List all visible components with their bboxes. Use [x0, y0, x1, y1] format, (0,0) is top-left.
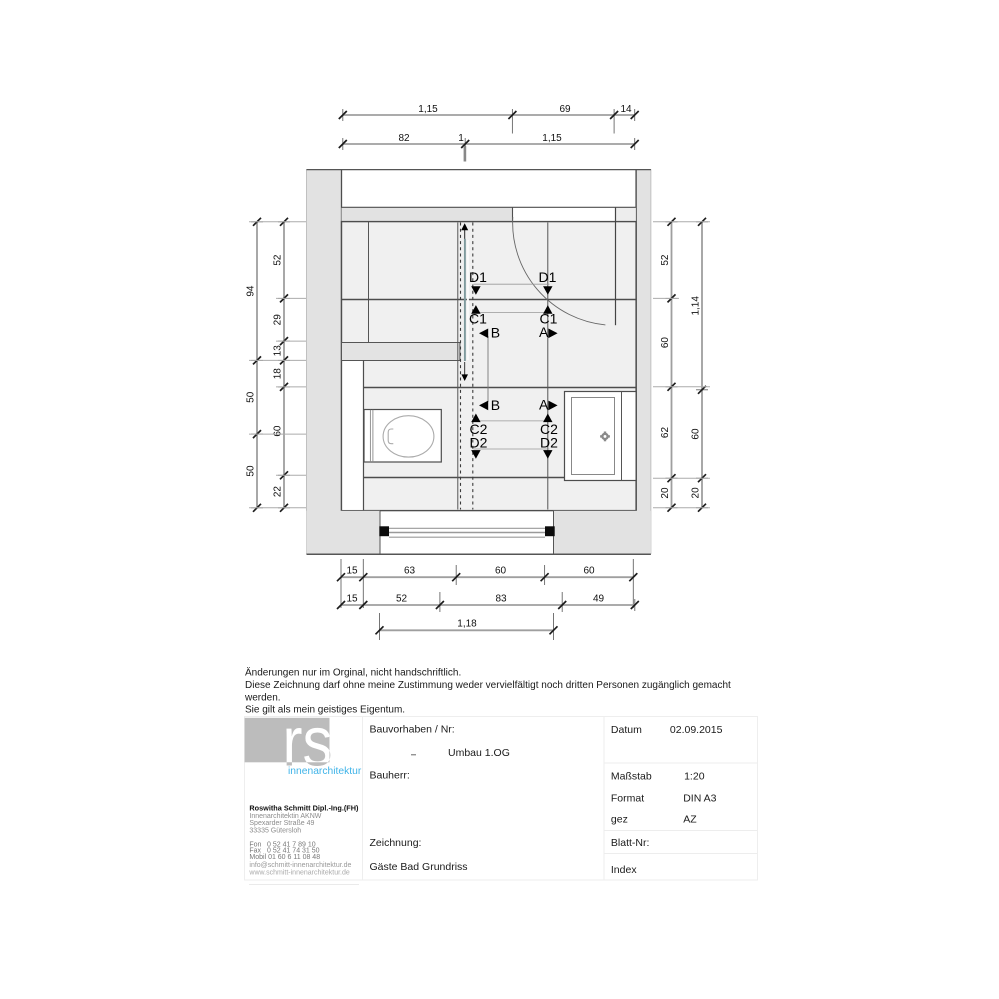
svg-text:1: 1: [458, 133, 464, 144]
svg-text:20: 20: [660, 487, 671, 499]
svg-text:D2: D2: [470, 434, 488, 450]
svg-text:1,14: 1,14: [691, 296, 702, 316]
svg-text:AZ: AZ: [683, 814, 697, 826]
svg-text:15: 15: [346, 566, 358, 577]
svg-text:60: 60: [660, 337, 671, 349]
svg-text:Bauherr:: Bauherr:: [370, 770, 410, 782]
svg-text:69: 69: [559, 104, 571, 115]
svg-text:Mobil 01 60 6 11 08 48: Mobil 01 60 6 11 08 48: [249, 854, 320, 861]
svg-text:Datum: Datum: [611, 724, 642, 736]
svg-text:60: 60: [495, 566, 507, 577]
svg-text:A: A: [539, 397, 549, 413]
svg-text:Bauvorhaben / Nr:: Bauvorhaben / Nr:: [370, 724, 455, 736]
svg-text:14: 14: [620, 104, 632, 115]
svg-text:18: 18: [273, 368, 284, 380]
svg-text:Index: Index: [611, 864, 637, 876]
svg-text:82: 82: [398, 133, 410, 144]
svg-text:Spexarder Straße 49: Spexarder Straße 49: [249, 820, 314, 827]
svg-text:gez: gez: [611, 814, 628, 826]
svg-text:Innenarchitektin AKNW: Innenarchitektin AKNW: [249, 813, 321, 820]
svg-text:Roswitha Schmitt Dipl.-Ing.(FH: Roswitha Schmitt Dipl.-Ing.(FH): [249, 803, 359, 812]
svg-text:22: 22: [273, 486, 284, 498]
svg-text:20: 20: [691, 487, 702, 499]
svg-text:1,18: 1,18: [457, 619, 477, 630]
svg-text:werden.: werden.: [244, 692, 281, 703]
svg-text:www.schmitt-innenarchitektur.d: www.schmitt-innenarchitektur.de: [248, 870, 349, 877]
svg-text:A: A: [539, 324, 549, 340]
svg-text:B: B: [491, 324, 500, 340]
svg-text:52: 52: [273, 254, 284, 266]
svg-text:50: 50: [246, 391, 257, 403]
svg-text:02.09.2015: 02.09.2015: [670, 724, 723, 736]
svg-text:1:20: 1:20: [684, 771, 705, 783]
svg-text:83: 83: [495, 593, 507, 604]
svg-text:29: 29: [273, 314, 284, 326]
svg-text:info@schmitt-innenarchitektur.: info@schmitt-innenarchitektur.de: [249, 862, 351, 869]
svg-text:62: 62: [660, 427, 671, 439]
svg-text:60: 60: [583, 566, 595, 577]
svg-text:Diese Zeichnung darf ohne mein: Diese Zeichnung darf ohne meine Zustimmu…: [245, 680, 731, 691]
svg-text:innenarchitektur: innenarchitektur: [288, 766, 362, 777]
svg-text:60: 60: [273, 425, 284, 437]
svg-text:1,15: 1,15: [418, 104, 438, 115]
svg-text:Umbau 1.OG: Umbau 1.OG: [448, 747, 510, 759]
svg-text:52: 52: [660, 254, 671, 266]
svg-text:Änderungen nur im Orginal, nic: Änderungen nur im Orginal, nicht handsch…: [245, 666, 461, 678]
svg-text:D1: D1: [539, 269, 557, 285]
svg-text:94: 94: [246, 285, 257, 297]
svg-text:Maßstab: Maßstab: [611, 771, 652, 783]
svg-text:15: 15: [346, 593, 358, 604]
svg-text:33335 Gütersloh: 33335 Gütersloh: [249, 827, 301, 834]
svg-text:Zeichnung:: Zeichnung:: [370, 837, 422, 849]
svg-text:D2: D2: [540, 434, 558, 450]
svg-text:Format: Format: [611, 793, 644, 805]
svg-text:13: 13: [273, 345, 284, 357]
svg-text:D1: D1: [469, 269, 487, 285]
svg-text:49: 49: [593, 593, 605, 604]
svg-text:52: 52: [396, 593, 408, 604]
svg-text:DIN A3: DIN A3: [683, 793, 716, 805]
svg-text:C1: C1: [469, 310, 487, 326]
svg-text:63: 63: [404, 566, 416, 577]
svg-text:Gäste Bad Grundriss: Gäste Bad Grundriss: [370, 861, 468, 873]
svg-text:60: 60: [691, 428, 702, 440]
svg-text:Blatt-Nr:: Blatt-Nr:: [611, 837, 650, 849]
svg-text:B: B: [491, 397, 500, 413]
svg-text:1,15: 1,15: [542, 133, 562, 144]
svg-text:50: 50: [246, 465, 257, 477]
